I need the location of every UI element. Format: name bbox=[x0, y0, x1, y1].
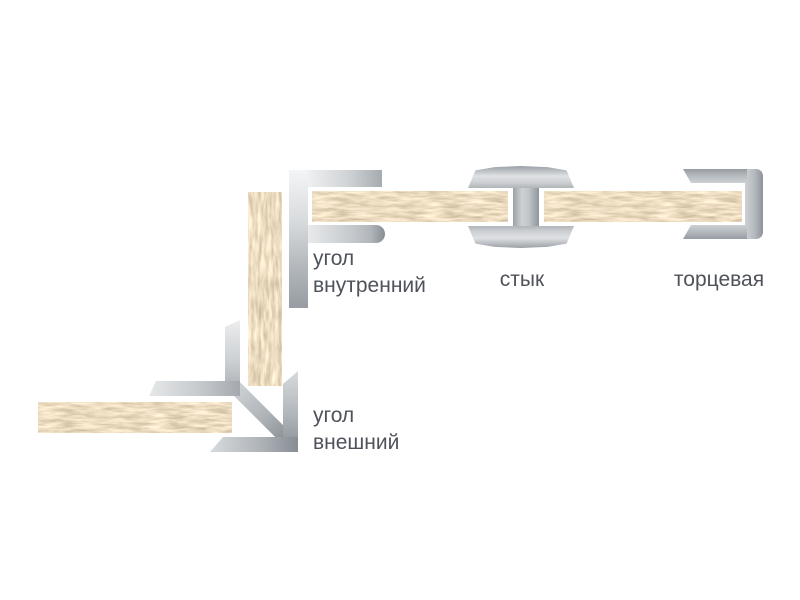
outer-corner-profile-outer-horizontal-arm bbox=[210, 437, 298, 452]
chipboard-panel-top-left bbox=[312, 191, 508, 222]
inner-corner-profile-top-arm bbox=[308, 170, 382, 187]
joint-profile-top-flange bbox=[468, 166, 574, 188]
label-end-cap: торцевая bbox=[653, 266, 785, 293]
joint-profile-web bbox=[513, 186, 539, 230]
chipboard-panel-top-right bbox=[544, 191, 742, 222]
chipboard-panel-bottom bbox=[38, 402, 232, 433]
profiles-diagram: угол внутренний стык торцевая угол внешн… bbox=[0, 0, 800, 600]
chipboard-panel-vertical bbox=[248, 192, 282, 386]
end-cap-profile-top-arm bbox=[683, 169, 747, 183]
label-inner-corner-line2: внутренний bbox=[313, 272, 426, 299]
label-outer-corner: угол внешний bbox=[313, 402, 399, 456]
outer-corner-profile-inner-horizontal-arm bbox=[149, 381, 240, 396]
label-inner-corner: угол внутренний bbox=[313, 245, 426, 299]
inner-corner-profile-middle-arm bbox=[308, 225, 385, 243]
label-joint: стык bbox=[476, 266, 568, 293]
inner-corner-profile-stem bbox=[289, 170, 308, 308]
label-inner-corner-line1: угол bbox=[313, 245, 426, 272]
end-cap-profile-bottom-arm bbox=[683, 225, 747, 239]
label-outer-corner-line2: внешний bbox=[313, 429, 399, 456]
joint-profile-bottom-flange bbox=[468, 226, 574, 248]
label-outer-corner-line1: угол bbox=[313, 402, 399, 429]
end-cap-profile-wall bbox=[745, 169, 763, 239]
